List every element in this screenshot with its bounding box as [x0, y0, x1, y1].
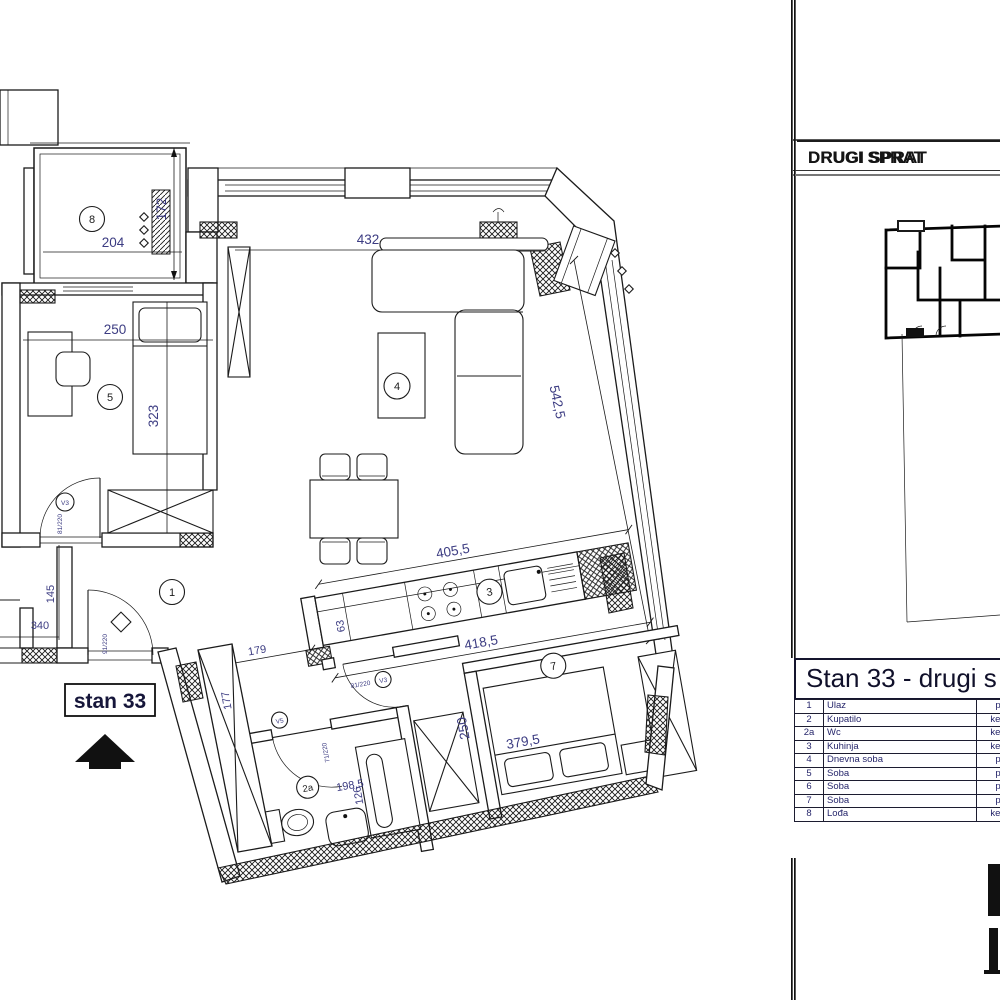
room-finish: p — [977, 700, 1000, 714]
dimension-label: 432 — [357, 232, 380, 247]
room-name: Soba — [824, 794, 977, 808]
door-size-label: 81/220 — [57, 514, 64, 534]
floor-title-band: DRUGI SPRAT — [797, 140, 1000, 171]
apartment-label: stan 33 — [74, 690, 146, 713]
room-5: 5 250 323 V3 81/220 — [2, 283, 217, 547]
panel-border — [791, 0, 795, 658]
door-size-label: 81/220 — [350, 680, 371, 690]
dimension-label: 250 — [454, 716, 473, 741]
row-number: 2a — [795, 727, 824, 741]
dimension-label: 63 — [334, 619, 348, 633]
legend-title: Stan 33 - drugi s — [794, 658, 1000, 699]
living-room: 4 432 — [228, 232, 548, 564]
room-number: 1 — [169, 587, 175, 599]
room-finish: p — [977, 781, 1000, 795]
mini-floor-plan — [886, 221, 1000, 622]
dimension-label: 204 — [102, 235, 125, 250]
room-name: Kuhinja — [824, 740, 977, 754]
room-name: Lođa — [824, 808, 977, 822]
table-row: 5 Soba p — [795, 767, 1000, 781]
apartment-legend: Stan 33 - drugi s 1 Ulaz p 2 Kupatilo ke… — [794, 656, 1000, 822]
room-finish: ker. — [977, 727, 1000, 741]
sofa-icon — [380, 238, 548, 251]
divider — [793, 170, 1000, 171]
table-row: 6 Soba p — [795, 781, 1000, 795]
door-symbol-icon — [111, 612, 131, 632]
table-row: 8 Lođa ker. — [795, 808, 1000, 822]
table-row: 4 Dnevna soba p — [795, 754, 1000, 768]
chair-icon — [56, 352, 90, 386]
room-finish: ker. — [977, 713, 1000, 727]
dimension-label: 179 — [247, 643, 267, 658]
dimension-label: 145 — [45, 585, 57, 603]
room-loggia: 8 204 172 — [34, 148, 186, 284]
door-mark: V5 — [275, 717, 284, 725]
row-number: 6 — [795, 781, 824, 795]
table-row: 3 Kuhinja ker. — [795, 740, 1000, 754]
table-row: 7 Soba p — [795, 794, 1000, 808]
radiator-icon — [480, 222, 517, 238]
apartment-label-group: stan 33 — [65, 684, 155, 769]
edge-cut-glyphs — [984, 864, 1000, 974]
row-number: 7 — [795, 794, 824, 808]
door-mark: V3 — [379, 677, 388, 685]
site-outline — [902, 334, 1000, 622]
entrance-arrow-icon — [75, 734, 135, 769]
floor-title-text: DRUGI SPRAT — [797, 142, 1000, 168]
table-row: 1 Ulaz p — [795, 700, 1000, 714]
radiator-icon — [200, 222, 237, 238]
dining-table-icon — [310, 480, 398, 538]
row-number: 3 — [795, 740, 824, 754]
door-leaf — [343, 655, 394, 664]
floor-plan-sheet: 8 204 172 542,5 — [0, 0, 1000, 1000]
room-name: Kupatilo — [824, 713, 977, 727]
divider — [793, 174, 1000, 176]
dimension-label: 542,5 — [547, 384, 569, 420]
dimension-label: 250 — [104, 322, 127, 337]
room-finish: p — [977, 794, 1000, 808]
room-finish: ker. — [977, 808, 1000, 822]
panel-border — [791, 858, 795, 1000]
row-number: 4 — [795, 754, 824, 768]
table-row: 2a Wc ker. — [795, 727, 1000, 741]
room-number: 5 — [107, 392, 113, 404]
room-finish: p — [977, 767, 1000, 781]
row-number: 8 — [795, 808, 824, 822]
dimension-label: 172 — [154, 198, 169, 221]
room-number: 8 — [89, 214, 95, 226]
room-name: Wc — [824, 727, 977, 741]
room-name: Soba — [824, 781, 977, 795]
room-name: Dnevna soba — [824, 754, 977, 768]
door-size-label: 71/220 — [321, 742, 331, 763]
room-name: Ulaz — [824, 700, 977, 714]
dimension-label: 340 — [31, 620, 49, 632]
room-finish: p — [977, 754, 1000, 768]
dimension-label: 323 — [146, 405, 161, 428]
toilet-icon — [265, 804, 316, 844]
row-number: 5 — [795, 767, 824, 781]
room-name: Soba — [824, 767, 977, 781]
door-size-label: 91/220 — [102, 634, 109, 654]
row-number: 1 — [795, 700, 824, 714]
table-row: 2 Kupatilo ker. — [795, 713, 1000, 727]
door-leaf — [272, 727, 331, 737]
legend-table: 1 Ulaz p 2 Kupatilo ker. 2a Wc ker. 3 Ku… — [794, 699, 1000, 822]
row-number: 2 — [795, 713, 824, 727]
room-finish: ker. — [977, 740, 1000, 754]
door-mark: V3 — [61, 500, 69, 507]
room-number: 4 — [394, 381, 400, 393]
